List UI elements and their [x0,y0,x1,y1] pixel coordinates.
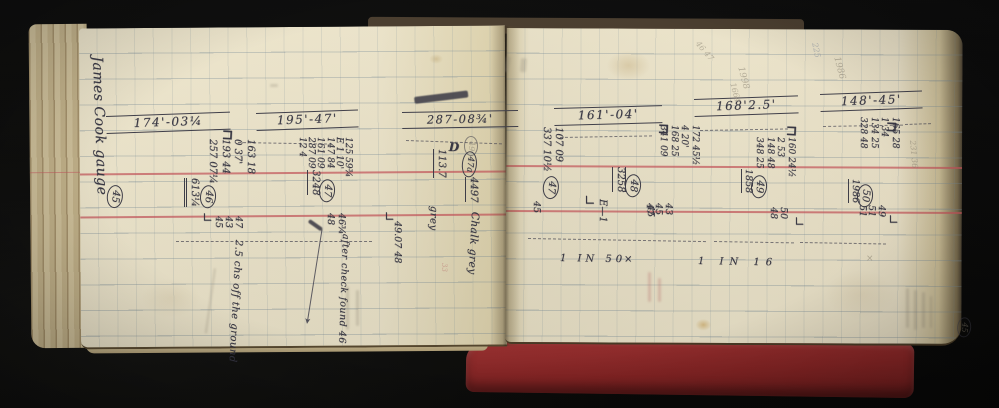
pencil-smudge [914,290,917,330]
readings-50-line: 1 34 [879,117,890,149]
readings-46-line: 163 18 [244,139,257,184]
check-readings-46-line: 47 [233,216,243,228]
check-readings-49-line: 50 [778,207,788,219]
scale-1-in-50: 1 IN 50 [560,254,626,266]
check-readings-46-line: 45 [213,216,223,228]
readings-48-line: 341 09 [658,125,669,165]
pencil-smudge [205,268,216,334]
check-readings-49: 5048 [768,207,788,219]
staple-mark: D [449,141,460,154]
pencil-smudge [520,58,527,72]
readings-47r-line: 337 10½ [540,127,552,172]
check-readings-50-line: 49 [877,205,887,217]
section-header-161: 161'-04' [554,105,662,125]
check-readings-47-line: 46¾ [336,213,347,234]
dash-lower-right-c [800,242,886,245]
total-4497: 4497 [466,177,479,202]
readings-47r-line: 107 09 [552,127,564,172]
check-readings-46: 474345 [213,216,243,228]
peg-45-circled: 45 [106,184,124,208]
x-mark: × [624,255,632,266]
margin-signature: James Cook gauge [89,56,110,234]
peg-47a-circled: 47a [461,151,478,178]
readings-46-line: 0 37' [231,139,244,184]
readings-46-line: 193 44 [219,139,232,184]
readings-50-line: 328 48 [858,117,869,149]
pencil-smudge [930,296,932,328]
check-readings-46-line: 43 [223,216,233,228]
readings-48-line: 172 45½ [690,125,701,165]
ink-squiggle [308,219,323,231]
check-readings-49-line: 48 [768,207,778,219]
pencil-1986: 1986 [831,56,846,81]
dash-lower-right-a [528,238,706,242]
pencil-smudge [346,286,349,330]
scratched-out-text [414,90,468,104]
check-45: 45 [531,201,541,213]
check-readings-48-line: 47 [645,203,655,215]
check-readings-48-line: 43 [664,203,674,215]
mark-e1: E—1 [597,199,608,223]
section-header-168: 168'2.5' [694,95,799,116]
total-1858: 1858 [741,169,753,193]
corner-mark: ∟ [202,212,213,226]
handwriting-layer: James Cook gauge45174'-03¼⊐163 180 37'19… [0,0,999,408]
pencil-smudge [356,290,359,326]
section-header-195: 195'-47' [256,109,359,130]
readings-48-line: 4 20' [679,125,690,165]
arrowhead-icon: ➤ [303,317,313,325]
arrow-line: ➤ [307,229,322,320]
check-readings-50-line: 51 [858,205,868,217]
total-1986: 1986 [848,179,860,203]
pencil-45-circled: 45 [956,317,972,338]
red-pencil-33: 33 [440,263,447,272]
pencil-smudge [922,292,925,328]
readings-49: 160 24½2 53148 48348 25 [754,137,796,177]
peg-47-circled: 47 [542,175,560,199]
corner-mark: ∟ [794,216,805,230]
readings-50-line: 165 28 [890,117,901,149]
red-pencil-smudge [648,272,651,302]
check-readings-48: 434547 [645,203,674,215]
dash-lower-right-b [714,241,794,243]
readings-46-line: 257 07¼ [206,139,219,184]
pencil-smudge [906,288,909,328]
readings-49-line: 160 24½ [786,137,797,177]
pencil-smudge [270,84,278,87]
corner-mark: ∟ [584,194,596,209]
red-pencil-smudge [658,278,661,302]
check-readings-48-line: 45 [654,203,664,215]
readings-47r: 107 09337 10½ [540,127,564,172]
dash-under-168 [700,128,788,131]
readings-49-line: 148 48 [765,137,776,177]
note-off-ground: 2.5 chs off the ground [227,239,243,335]
corner-mark: ∟ [888,214,899,228]
readings-50: 165 281 34134 25328 48 [858,117,900,149]
peg-46-circled: 46 [199,185,217,209]
readings-49-line: 2 53 [775,137,786,177]
level-113-7: 113.7 [434,149,447,178]
total-46: 613¼ [185,178,200,207]
pencil-x: × [866,255,874,264]
pencil-4647: 46 47 [694,40,715,63]
dash-under-161 [560,135,652,138]
check-readings-47-line: 48 [325,213,336,234]
note-chalk-grey: Chalk grey [464,211,480,299]
readings-48-line: 168 25 [669,125,680,165]
readings-48: 172 45½4 20'168 25341 09 [658,125,700,165]
readings-49-07: 49.07 48 [392,221,402,263]
readings-49-line: 348 25 [754,137,765,177]
dash-right-edge [905,123,931,125]
scale-1-in-16: 1 IN 16 [698,257,778,269]
readings-50-line: 134 25 [869,117,880,149]
total-3258: 3258 [613,167,627,192]
readings-46: 163 180 37'193 44257 07¼ [206,139,256,184]
check-readings-50: 495151 [858,205,887,217]
section-header-148: 148'-45' [820,90,923,111]
staple-mark: ⊐ [785,124,797,139]
dash-lower-left [176,241,372,242]
section-header-287: 287-08¾' [402,110,518,129]
pencil-231-36: 231 36 [908,140,919,169]
note-grey: grey [427,206,438,231]
notebook-photo: James Cook gauge45174'-03¼⊐163 180 37'19… [0,0,999,408]
check-readings-47: 46¾48 [325,213,347,234]
check-readings-50-line: 51 [867,205,877,217]
section-header-174: 174'-03¼ [106,112,231,134]
pencil-smudge [503,56,511,73]
pencil-225: 225 [810,42,821,59]
peg-48-circled: 48 [624,174,642,198]
peg-47-circled: 47 [318,179,336,203]
readings-47-line: 125 59¾ [343,137,352,177]
